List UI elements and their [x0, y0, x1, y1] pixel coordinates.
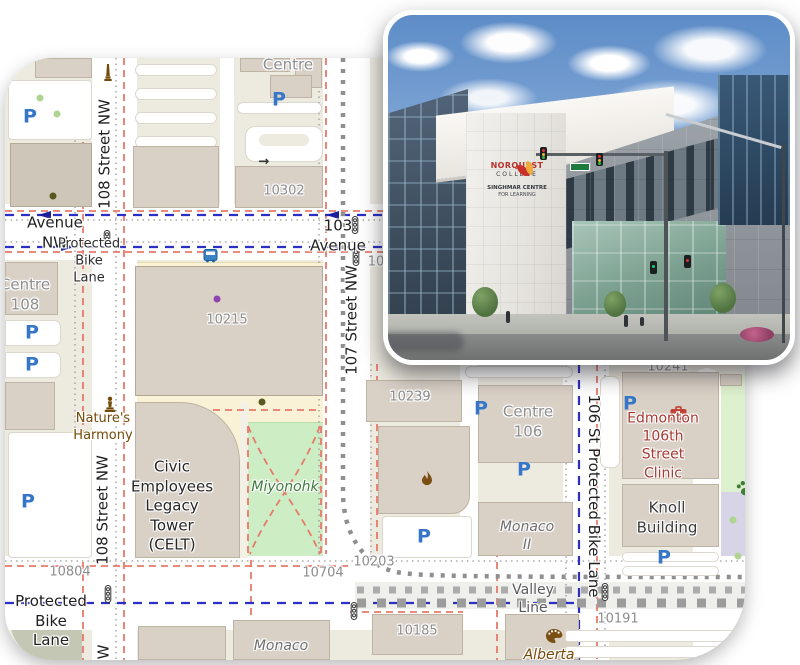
driveway-island — [259, 134, 309, 146]
bld-10239: 10239 — [389, 390, 430, 407]
parking-aisle — [135, 64, 217, 76]
parking-row — [465, 366, 573, 378]
tree-dot — [730, 517, 737, 524]
bld-10-partial: 10 — [368, 255, 385, 272]
bld-knoll: Knoll Building — [637, 499, 698, 538]
tree-dot-dark — [259, 399, 266, 406]
sign-for-learning: FOR LEARNING — [480, 192, 554, 198]
street-protected-bike-lane-s: Protected Bike Lane — [15, 592, 87, 651]
street-103-avenue: 103 Avenue — [310, 217, 366, 256]
street-106-st-pbl: 106 St Protected Bike Lane — [583, 394, 603, 597]
building-flame — [378, 426, 470, 514]
bld-10302: 10302 — [263, 184, 304, 201]
pedestrian — [506, 311, 510, 323]
sign-college: COLLEGE — [480, 171, 554, 178]
poi-alberta: Alberta — [524, 646, 575, 660]
valley-line: Valley Line — [512, 581, 554, 617]
tree-dot — [37, 95, 44, 102]
pedestrian — [624, 315, 628, 327]
poi-edmonton-clinic: Edmonton 106th Street Clinic — [627, 410, 699, 483]
bld-10704: 10704 — [302, 566, 343, 583]
bld-10185: 10185 — [396, 624, 437, 641]
pedestrian-signal-icon — [684, 255, 691, 268]
building — [133, 146, 219, 208]
parking-row — [600, 376, 620, 468]
artwork-dot — [214, 296, 221, 303]
street-108-nw-partial: W — [94, 645, 114, 660]
park-miyonohk: Miyonohk — [251, 478, 318, 496]
building-row — [565, 646, 741, 658]
street-lamp-pole — [782, 143, 785, 343]
glass-building-far-right — [718, 75, 790, 225]
parking-icon: P — [417, 528, 431, 547]
parking-aisle — [135, 88, 217, 100]
parking-aisle — [135, 112, 217, 124]
traffic-pole — [664, 151, 668, 341]
tree — [710, 283, 736, 313]
building — [720, 374, 742, 386]
building — [5, 382, 55, 430]
pedestrian — [640, 317, 644, 326]
tree-dot — [735, 553, 742, 560]
bld-monaco: Monaco — [254, 637, 308, 655]
bld-10191: 10191 — [597, 612, 638, 629]
pedestrian-signal-icon — [650, 261, 657, 274]
building-10215 — [135, 266, 323, 396]
poi-natures-harmony: Nature's Harmony — [73, 411, 132, 445]
bld-10215: 10215 — [206, 313, 247, 330]
tree-dot-dark — [50, 193, 57, 200]
parking-icon: P — [474, 400, 488, 419]
parking-icon: P — [272, 91, 286, 110]
traffic-light-icon — [596, 153, 603, 166]
building-row — [565, 630, 741, 642]
blurred-car — [383, 332, 464, 352]
street-protected-bike-lane: Protected Bike Lane — [58, 237, 120, 288]
traffic-light-icon — [540, 147, 547, 160]
bld-10203: 10203 — [353, 555, 394, 572]
parking-icon: P — [25, 356, 39, 375]
parking-lot — [8, 80, 92, 140]
building — [35, 58, 92, 78]
photo-inset-norquest: NORQUEST COLLEGE SINGHMAR CENTRE FOR LEA… — [383, 10, 795, 365]
bld-celt: Civic Employees Legacy Tower (CELT) — [131, 457, 213, 555]
parking-icon: P — [657, 549, 671, 568]
tree-dot — [54, 111, 61, 118]
street-name-sign — [570, 163, 590, 171]
driveway-arrow-icon: → — [259, 156, 270, 169]
parking-icon: P — [25, 324, 39, 343]
tree — [604, 291, 626, 317]
norquest-sign: NORQUEST COLLEGE SINGHMAR CENTRE FOR LEA… — [480, 161, 554, 198]
page: PPPPPPPPPP→ Avenue NW103 AvenueProtected… — [0, 0, 800, 665]
bld-monaco-ii: Monaco II — [500, 518, 554, 554]
bld-centre-106: Centre 106 — [503, 403, 553, 442]
parking-icon: P — [21, 493, 35, 512]
bld-centre-top: Centre — [263, 58, 313, 75]
flower-bush — [740, 327, 774, 342]
parking-icon: P — [517, 461, 531, 480]
tree — [472, 287, 498, 317]
street-107-nw: 107 Street NW — [342, 265, 362, 375]
sign-singhmar-centre: SINGHMAR CENTRE — [480, 185, 554, 191]
parking-icon: P — [23, 108, 37, 127]
bld-centre-108: Centre 108 — [5, 276, 50, 315]
bld-10804: 10804 — [49, 565, 90, 582]
building — [138, 626, 226, 660]
street-108-nw-top: 108 Street NW — [95, 99, 115, 209]
street-108-nw-mid: 108 Street NW — [93, 455, 113, 565]
